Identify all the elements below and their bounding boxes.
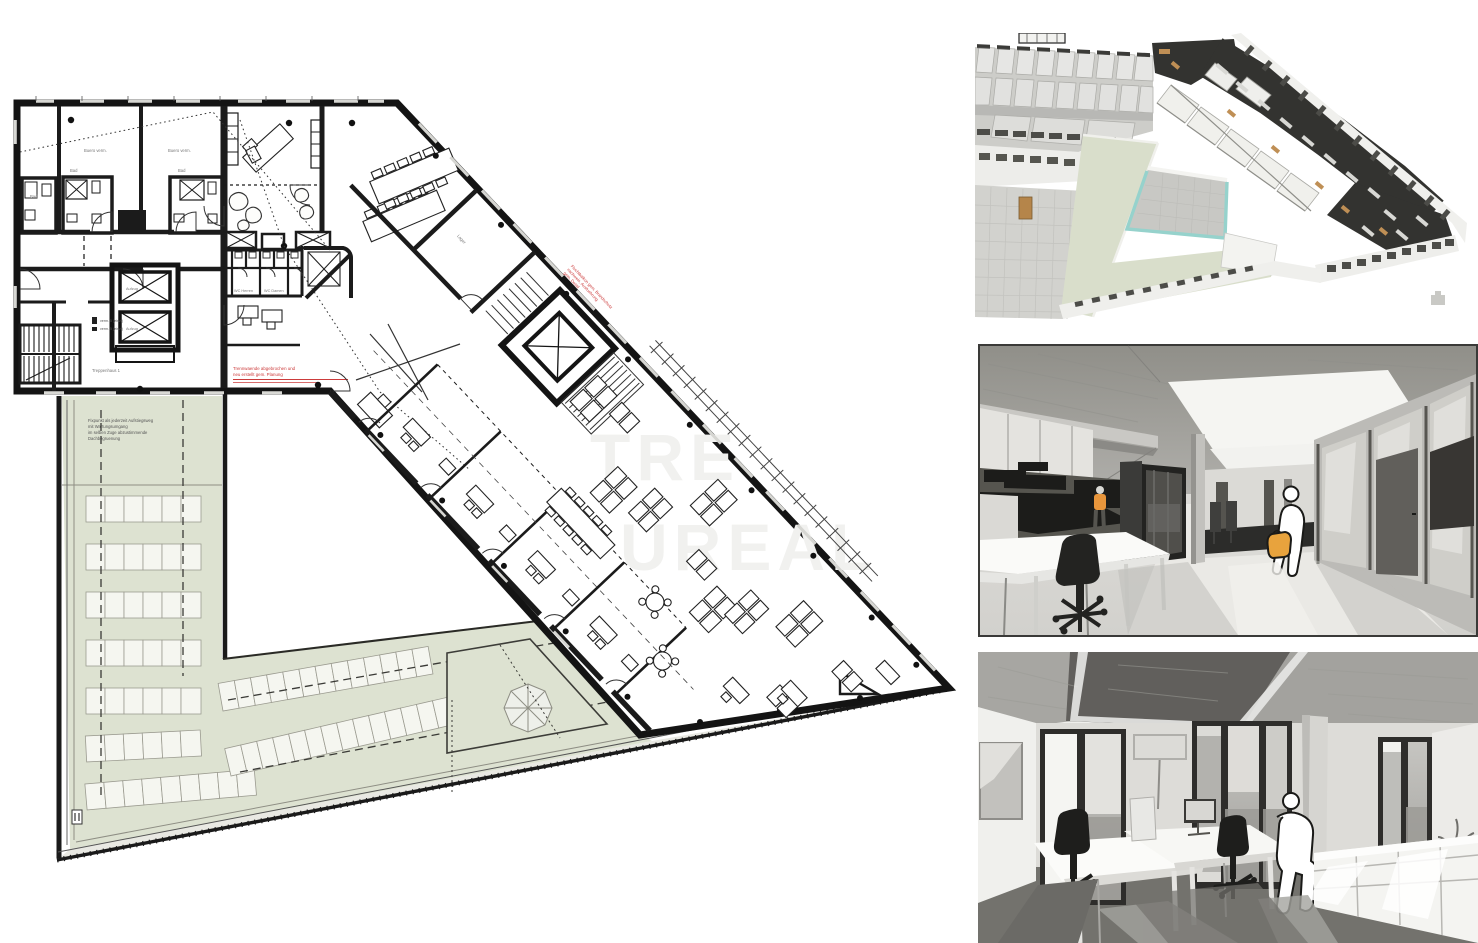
svg-text:neu erstellt gem. Planung: neu erstellt gem. Planung	[233, 372, 283, 377]
svg-text:WC Herren: WC Herren	[234, 289, 253, 293]
svg-text:Dachbegruenung: Dachbegruenung	[88, 436, 121, 441]
svg-text:mit Wartungsumgang: mit Wartungsumgang	[88, 424, 128, 429]
svg-text:Buero verm.: Buero verm.	[84, 148, 107, 153]
svg-text:UREAL: UREAL	[620, 510, 877, 584]
svg-text:verm. 5 (einz.): verm. 5 (einz.)	[100, 319, 123, 323]
svg-text:Bad: Bad	[178, 168, 186, 173]
svg-text:Aufzug: Aufzug	[126, 327, 138, 331]
svg-text:Fixpunkt als jederzeit Aufstie: Fixpunkt als jederzeit Aufstiegsweg	[88, 418, 154, 423]
svg-text:verm. 5 (einz.): verm. 5 (einz.)	[100, 327, 123, 331]
svg-text:Trennwaende abgebrochen und: Trennwaende abgebrochen und	[233, 366, 296, 371]
svg-text:im selben Zuge abzustimmende: im selben Zuge abzustimmende	[88, 430, 148, 435]
svg-text:Buero verm.: Buero verm.	[168, 148, 191, 153]
svg-text:Aufzug: Aufzug	[126, 287, 138, 291]
svg-text:Treppenhaus 1: Treppenhaus 1	[92, 368, 121, 373]
svg-text:Bad: Bad	[70, 168, 78, 173]
svg-text:Bad: Bad	[30, 194, 38, 199]
svg-text:WC Damen: WC Damen	[264, 289, 284, 293]
